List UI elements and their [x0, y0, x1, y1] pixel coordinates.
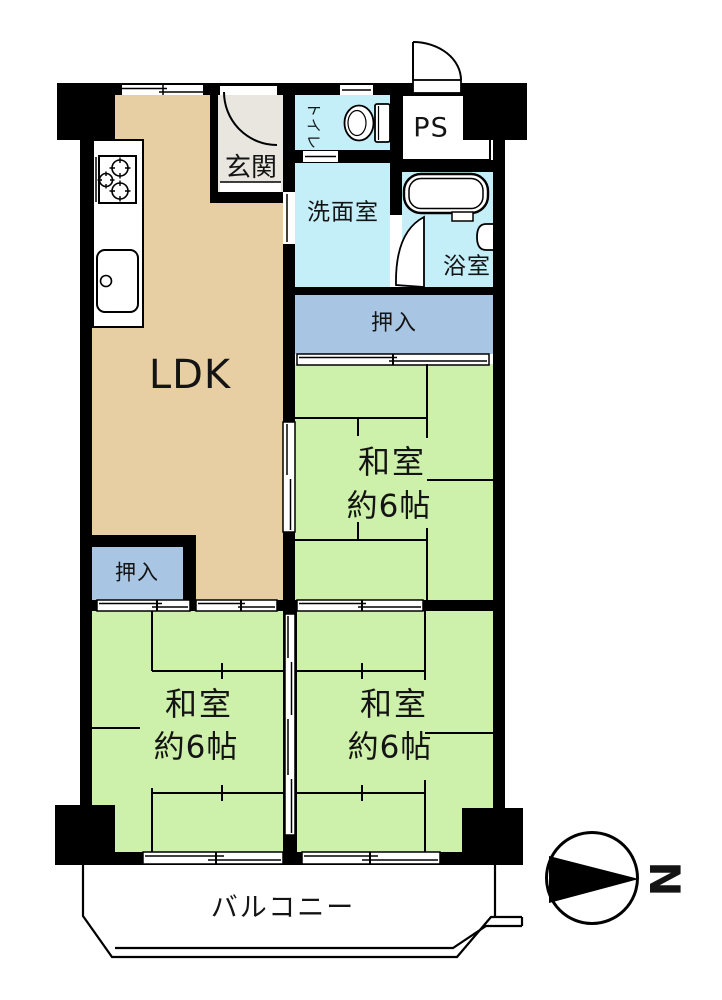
room-label-washitsu-bottom-right: 和室	[360, 688, 428, 720]
entry-door-swing-icon	[413, 42, 461, 93]
room-size-washitsu-middle: 約6帖	[347, 492, 432, 523]
room-label-washitsu-middle: 和室	[358, 446, 426, 478]
room-label-washroom: 洗面室	[307, 202, 379, 225]
kitchen-sink-icon	[97, 250, 138, 312]
north-arrow-icon	[547, 833, 640, 924]
room-label-closet-upper: 押入	[371, 313, 417, 335]
room-label-ldk: LDK	[149, 355, 231, 395]
genkan-step	[220, 182, 281, 192]
bath-washbasin-icon	[477, 224, 493, 250]
room-label-ps: PS	[413, 115, 448, 142]
room-size-washitsu-bottom-left: 約6帖	[154, 733, 239, 764]
room-label-bathroom: 浴室	[443, 256, 491, 279]
stove-icon	[96, 156, 136, 203]
compass-north-label: N	[643, 861, 685, 896]
room-label-genkan: 玄関	[225, 155, 277, 181]
room-label-washitsu-bottom-left: 和室	[165, 688, 233, 720]
room-label-balcony: バルコニー	[211, 895, 355, 922]
room-label-toilet: トイレ	[306, 102, 321, 150]
room-size-washitsu-bottom-right: 約6帖	[348, 733, 433, 764]
floorplan: LDK 玄関 トイレ PS 洗面室 浴室 押入 押入 和室 約6帖 和室 約6帖…	[0, 0, 722, 1000]
room-label-closet-lower: 押入	[115, 563, 159, 584]
toilet-icon	[345, 104, 391, 142]
